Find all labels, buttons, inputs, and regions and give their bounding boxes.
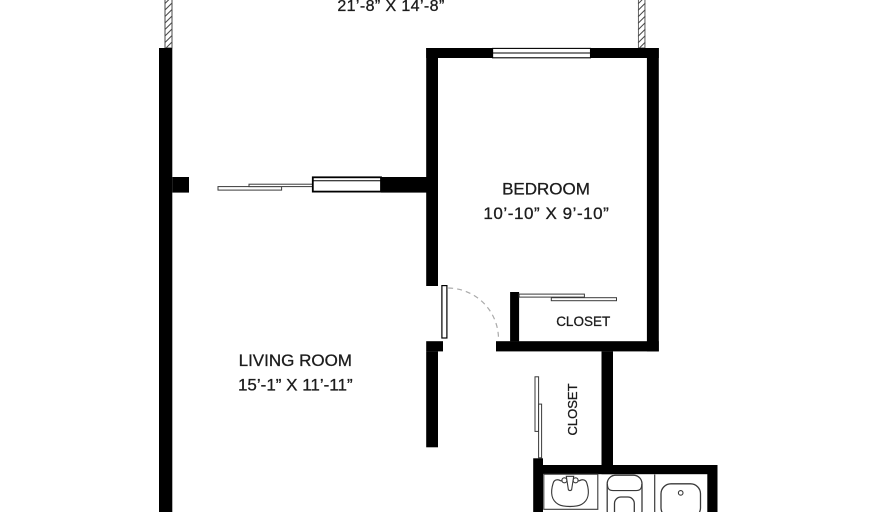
svg-text:15’-1” X 11’-11”: 15’-1” X 11’-11” (238, 376, 353, 395)
svg-text:CLOSET: CLOSET (556, 314, 610, 329)
svg-text:BEDROOM: BEDROOM (502, 180, 590, 199)
svg-text:10’-10” X 9’-10”: 10’-10” X 9’-10” (483, 204, 609, 223)
svg-text:CLOSET: CLOSET (565, 383, 580, 435)
svg-text:LIVING ROOM: LIVING ROOM (239, 351, 352, 370)
svg-text:21’-8” X 14’-8”: 21’-8” X 14’-8” (337, 0, 444, 15)
